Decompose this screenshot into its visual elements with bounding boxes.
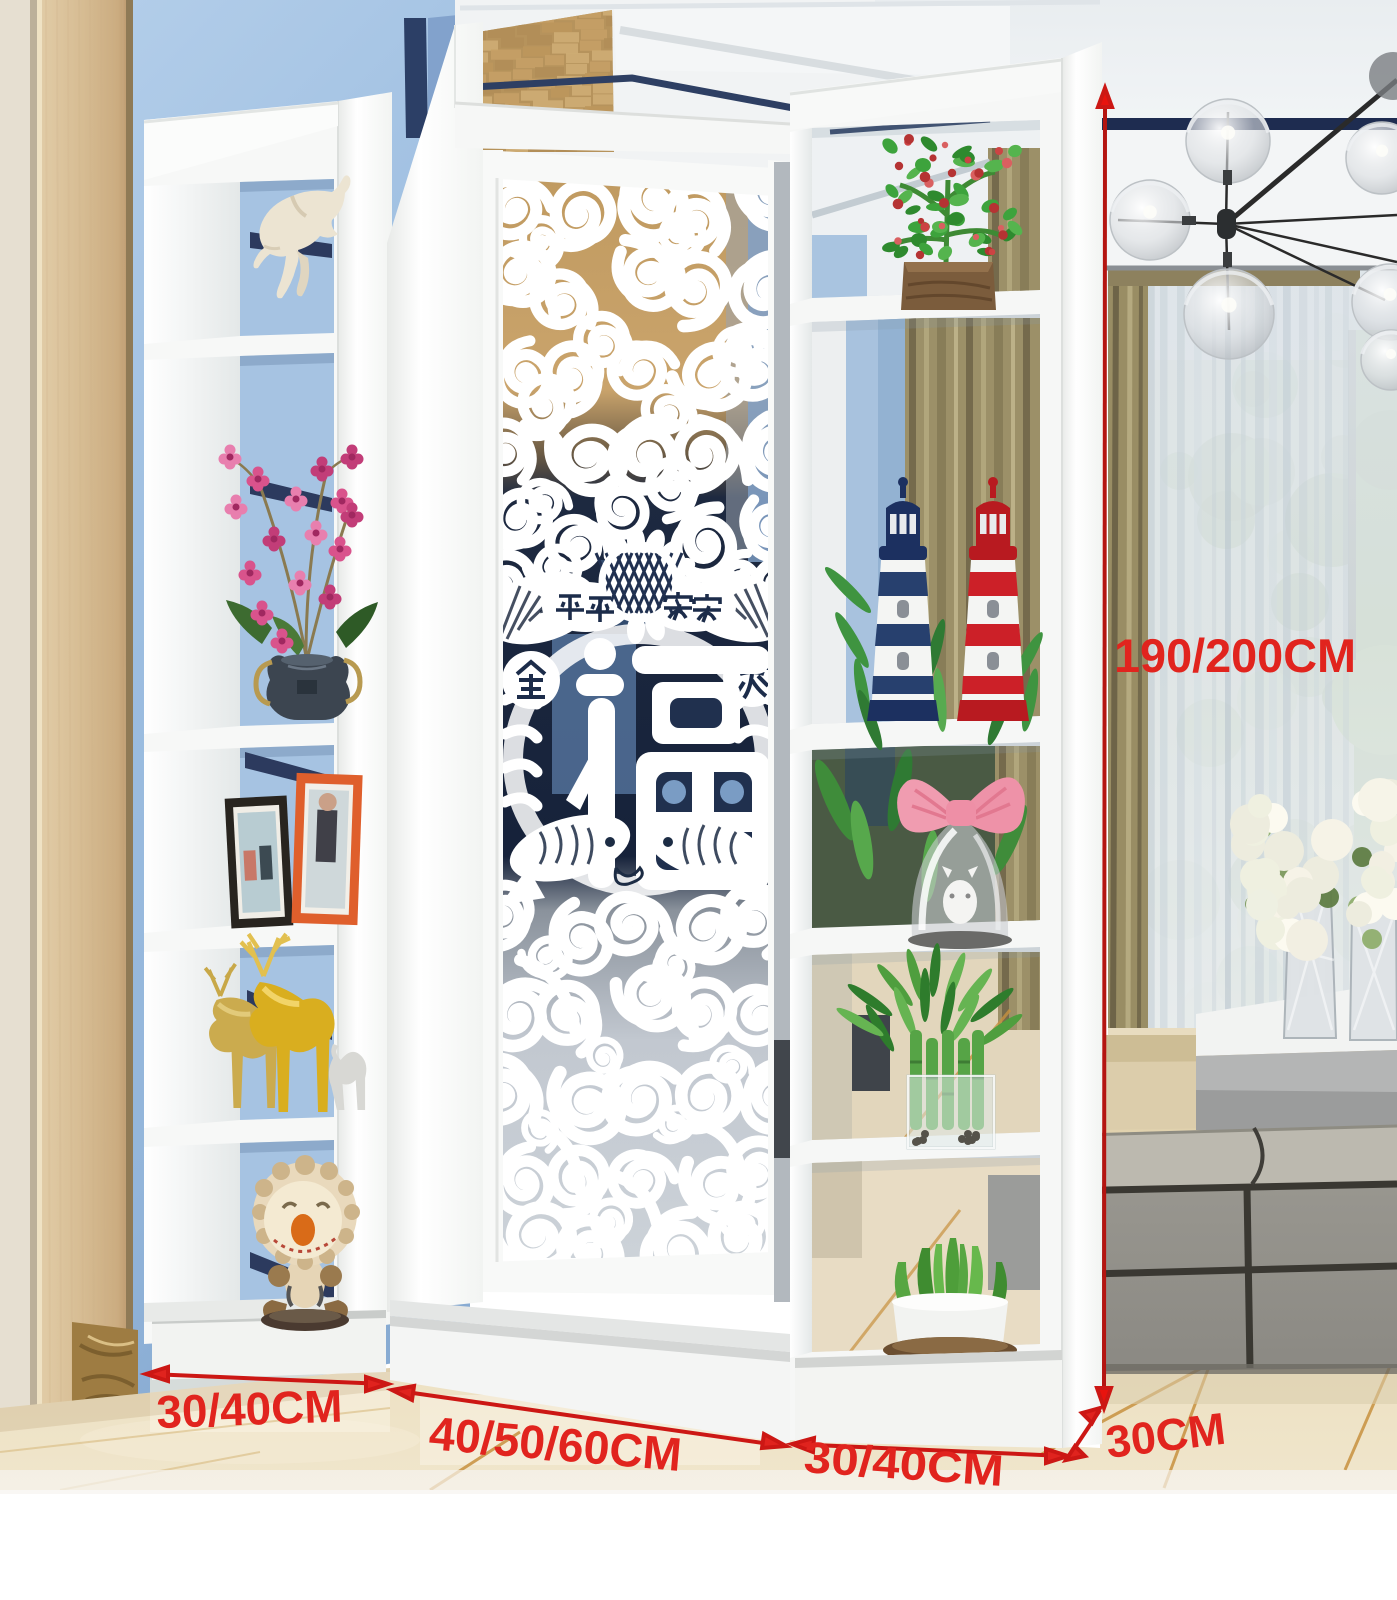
svg-text:30/40CM: 30/40CM	[156, 1380, 344, 1438]
svg-text:190/200CM: 190/200CM	[1114, 629, 1356, 682]
